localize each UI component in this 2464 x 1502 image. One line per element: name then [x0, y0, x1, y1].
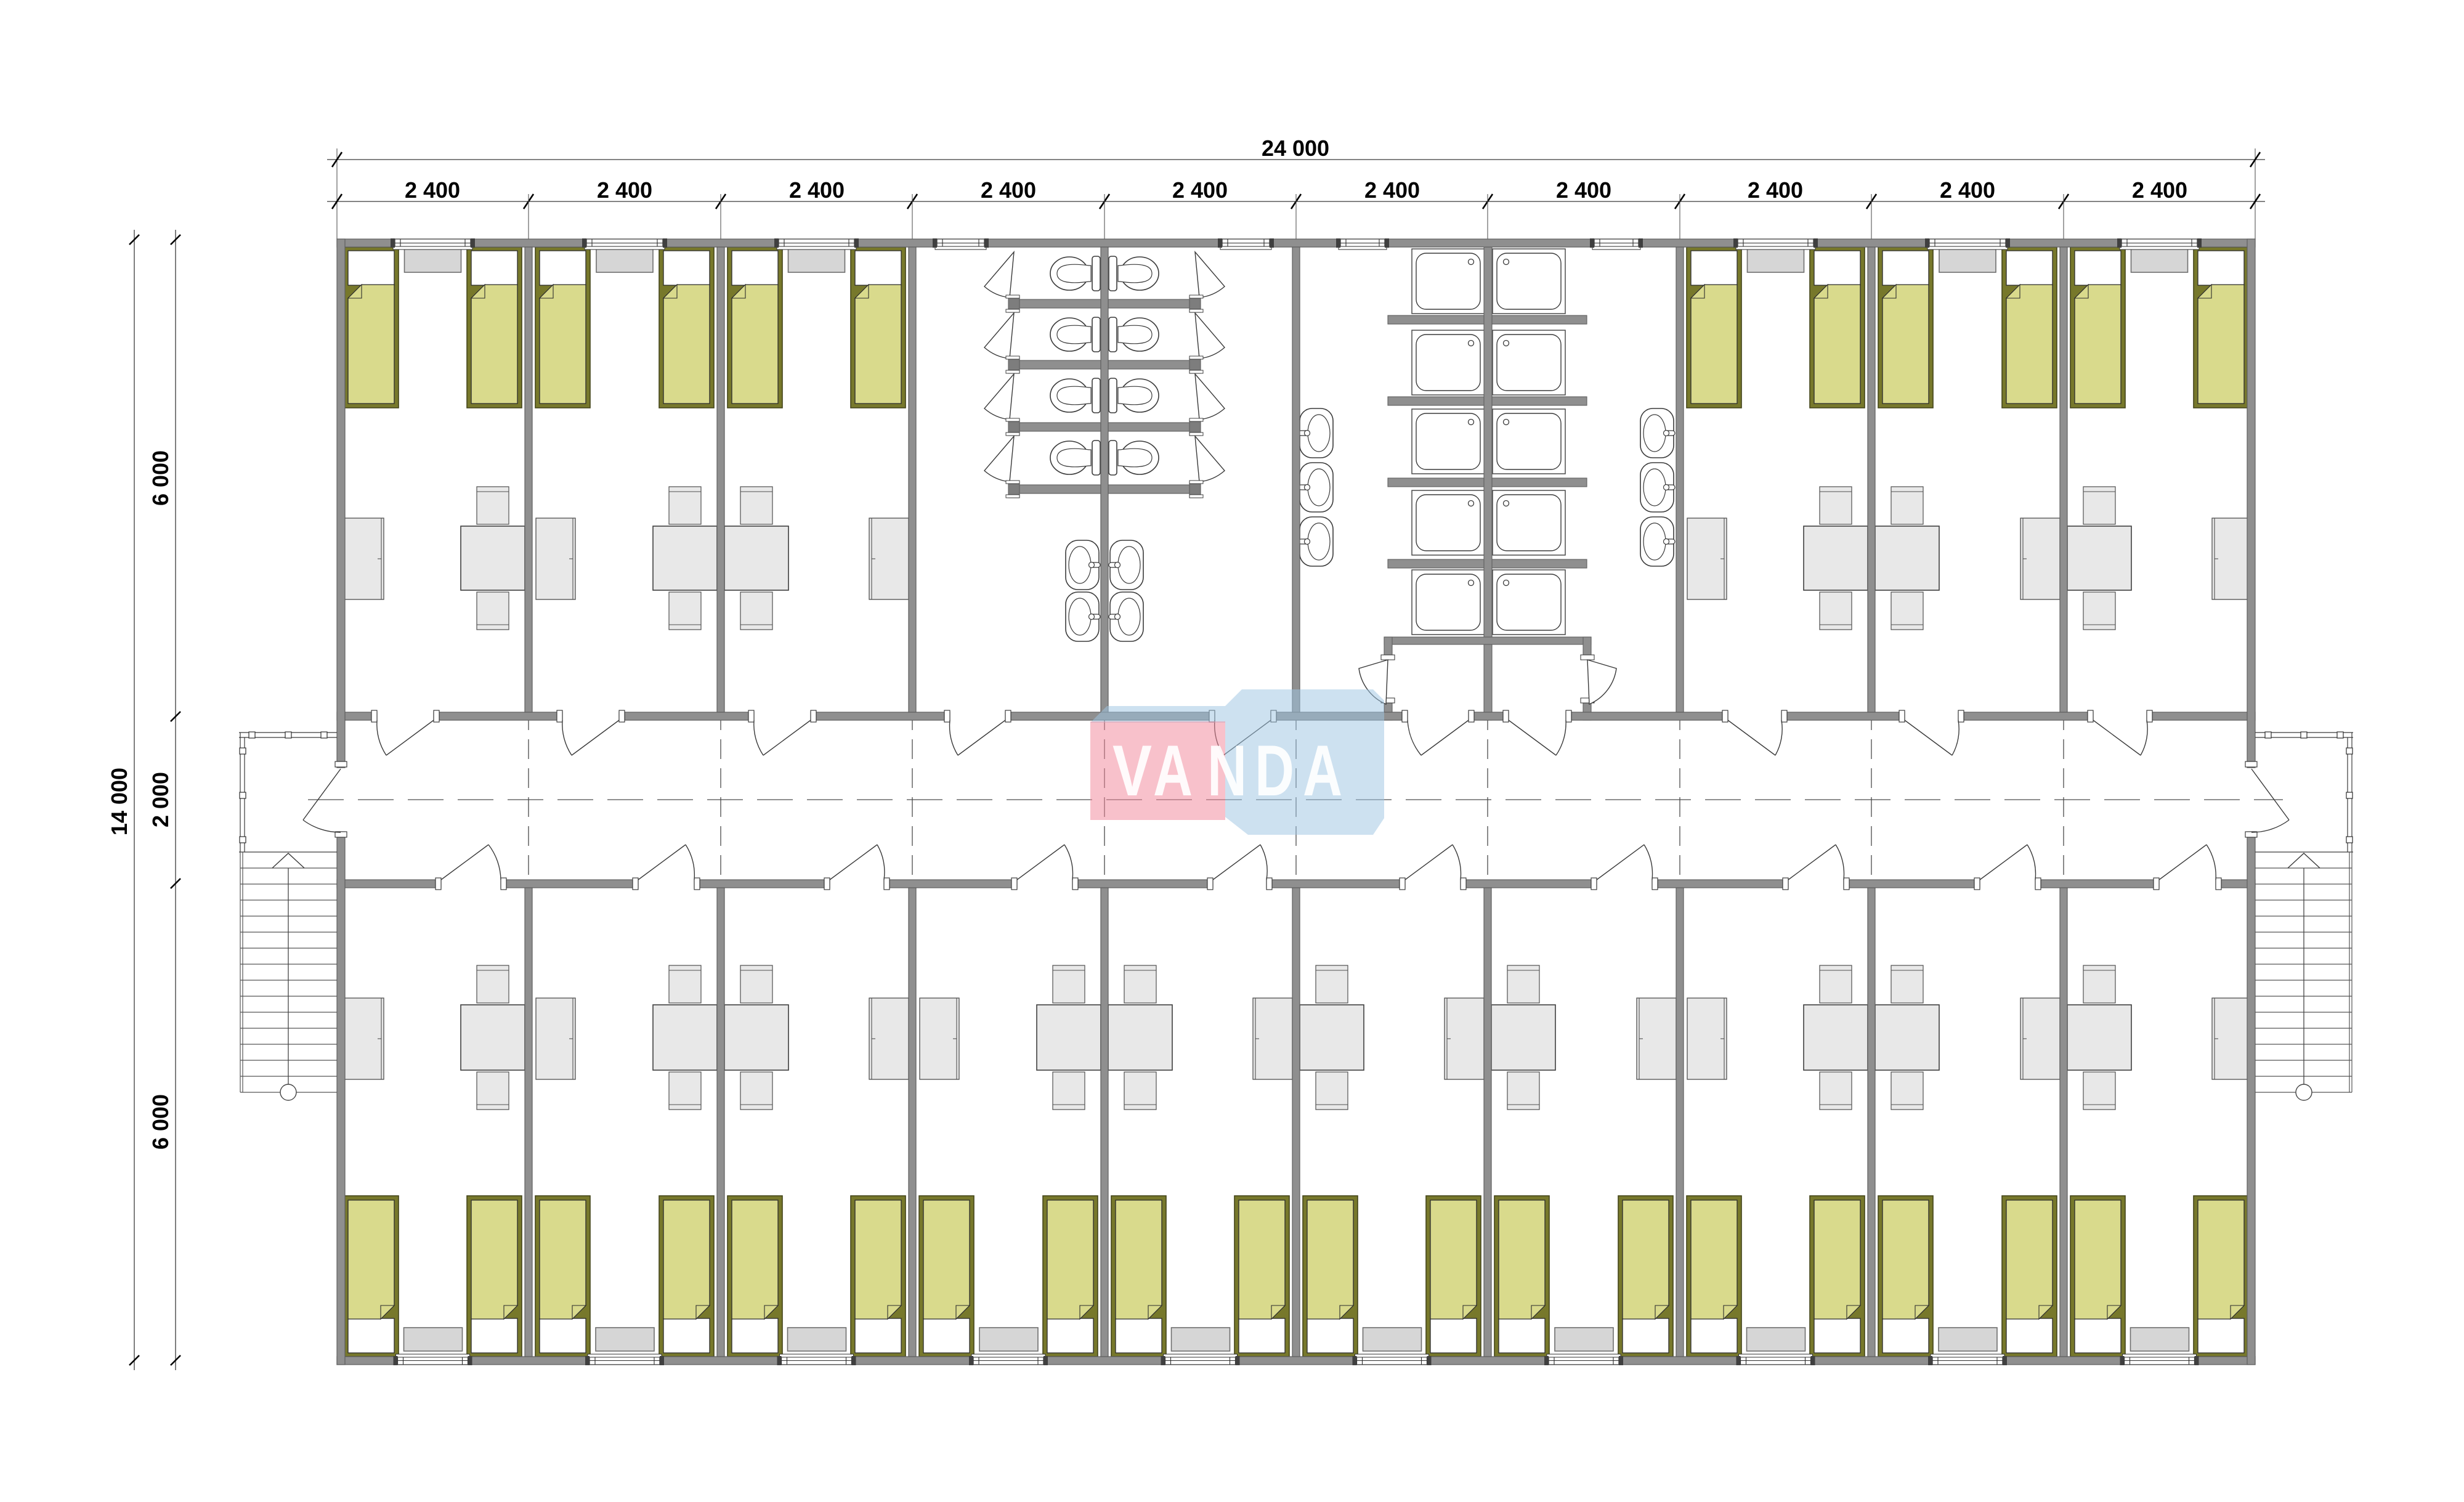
svg-text:2 000: 2 000	[148, 772, 173, 827]
svg-text:A: A	[1303, 730, 1342, 811]
svg-text:24 000: 24 000	[1262, 136, 1329, 161]
svg-text:V: V	[1112, 730, 1152, 811]
svg-text:2 400: 2 400	[597, 177, 652, 203]
svg-text:6 000: 6 000	[148, 1094, 173, 1150]
svg-text:6 000: 6 000	[148, 450, 173, 506]
svg-text:2 400: 2 400	[1940, 177, 1995, 203]
svg-text:2 400: 2 400	[981, 177, 1036, 203]
svg-text:2 400: 2 400	[1748, 177, 1803, 203]
svg-text:2 400: 2 400	[789, 177, 845, 203]
svg-text:2 400: 2 400	[1556, 177, 1611, 203]
svg-text:14 000: 14 000	[107, 768, 132, 835]
svg-text:2 400: 2 400	[1364, 177, 1420, 203]
svg-text:2 400: 2 400	[1172, 177, 1228, 203]
svg-text:N: N	[1207, 730, 1247, 811]
svg-text:A: A	[1153, 730, 1193, 811]
svg-text:2 400: 2 400	[2132, 177, 2187, 203]
svg-text:2 400: 2 400	[405, 177, 460, 203]
svg-text:D: D	[1255, 730, 1294, 811]
